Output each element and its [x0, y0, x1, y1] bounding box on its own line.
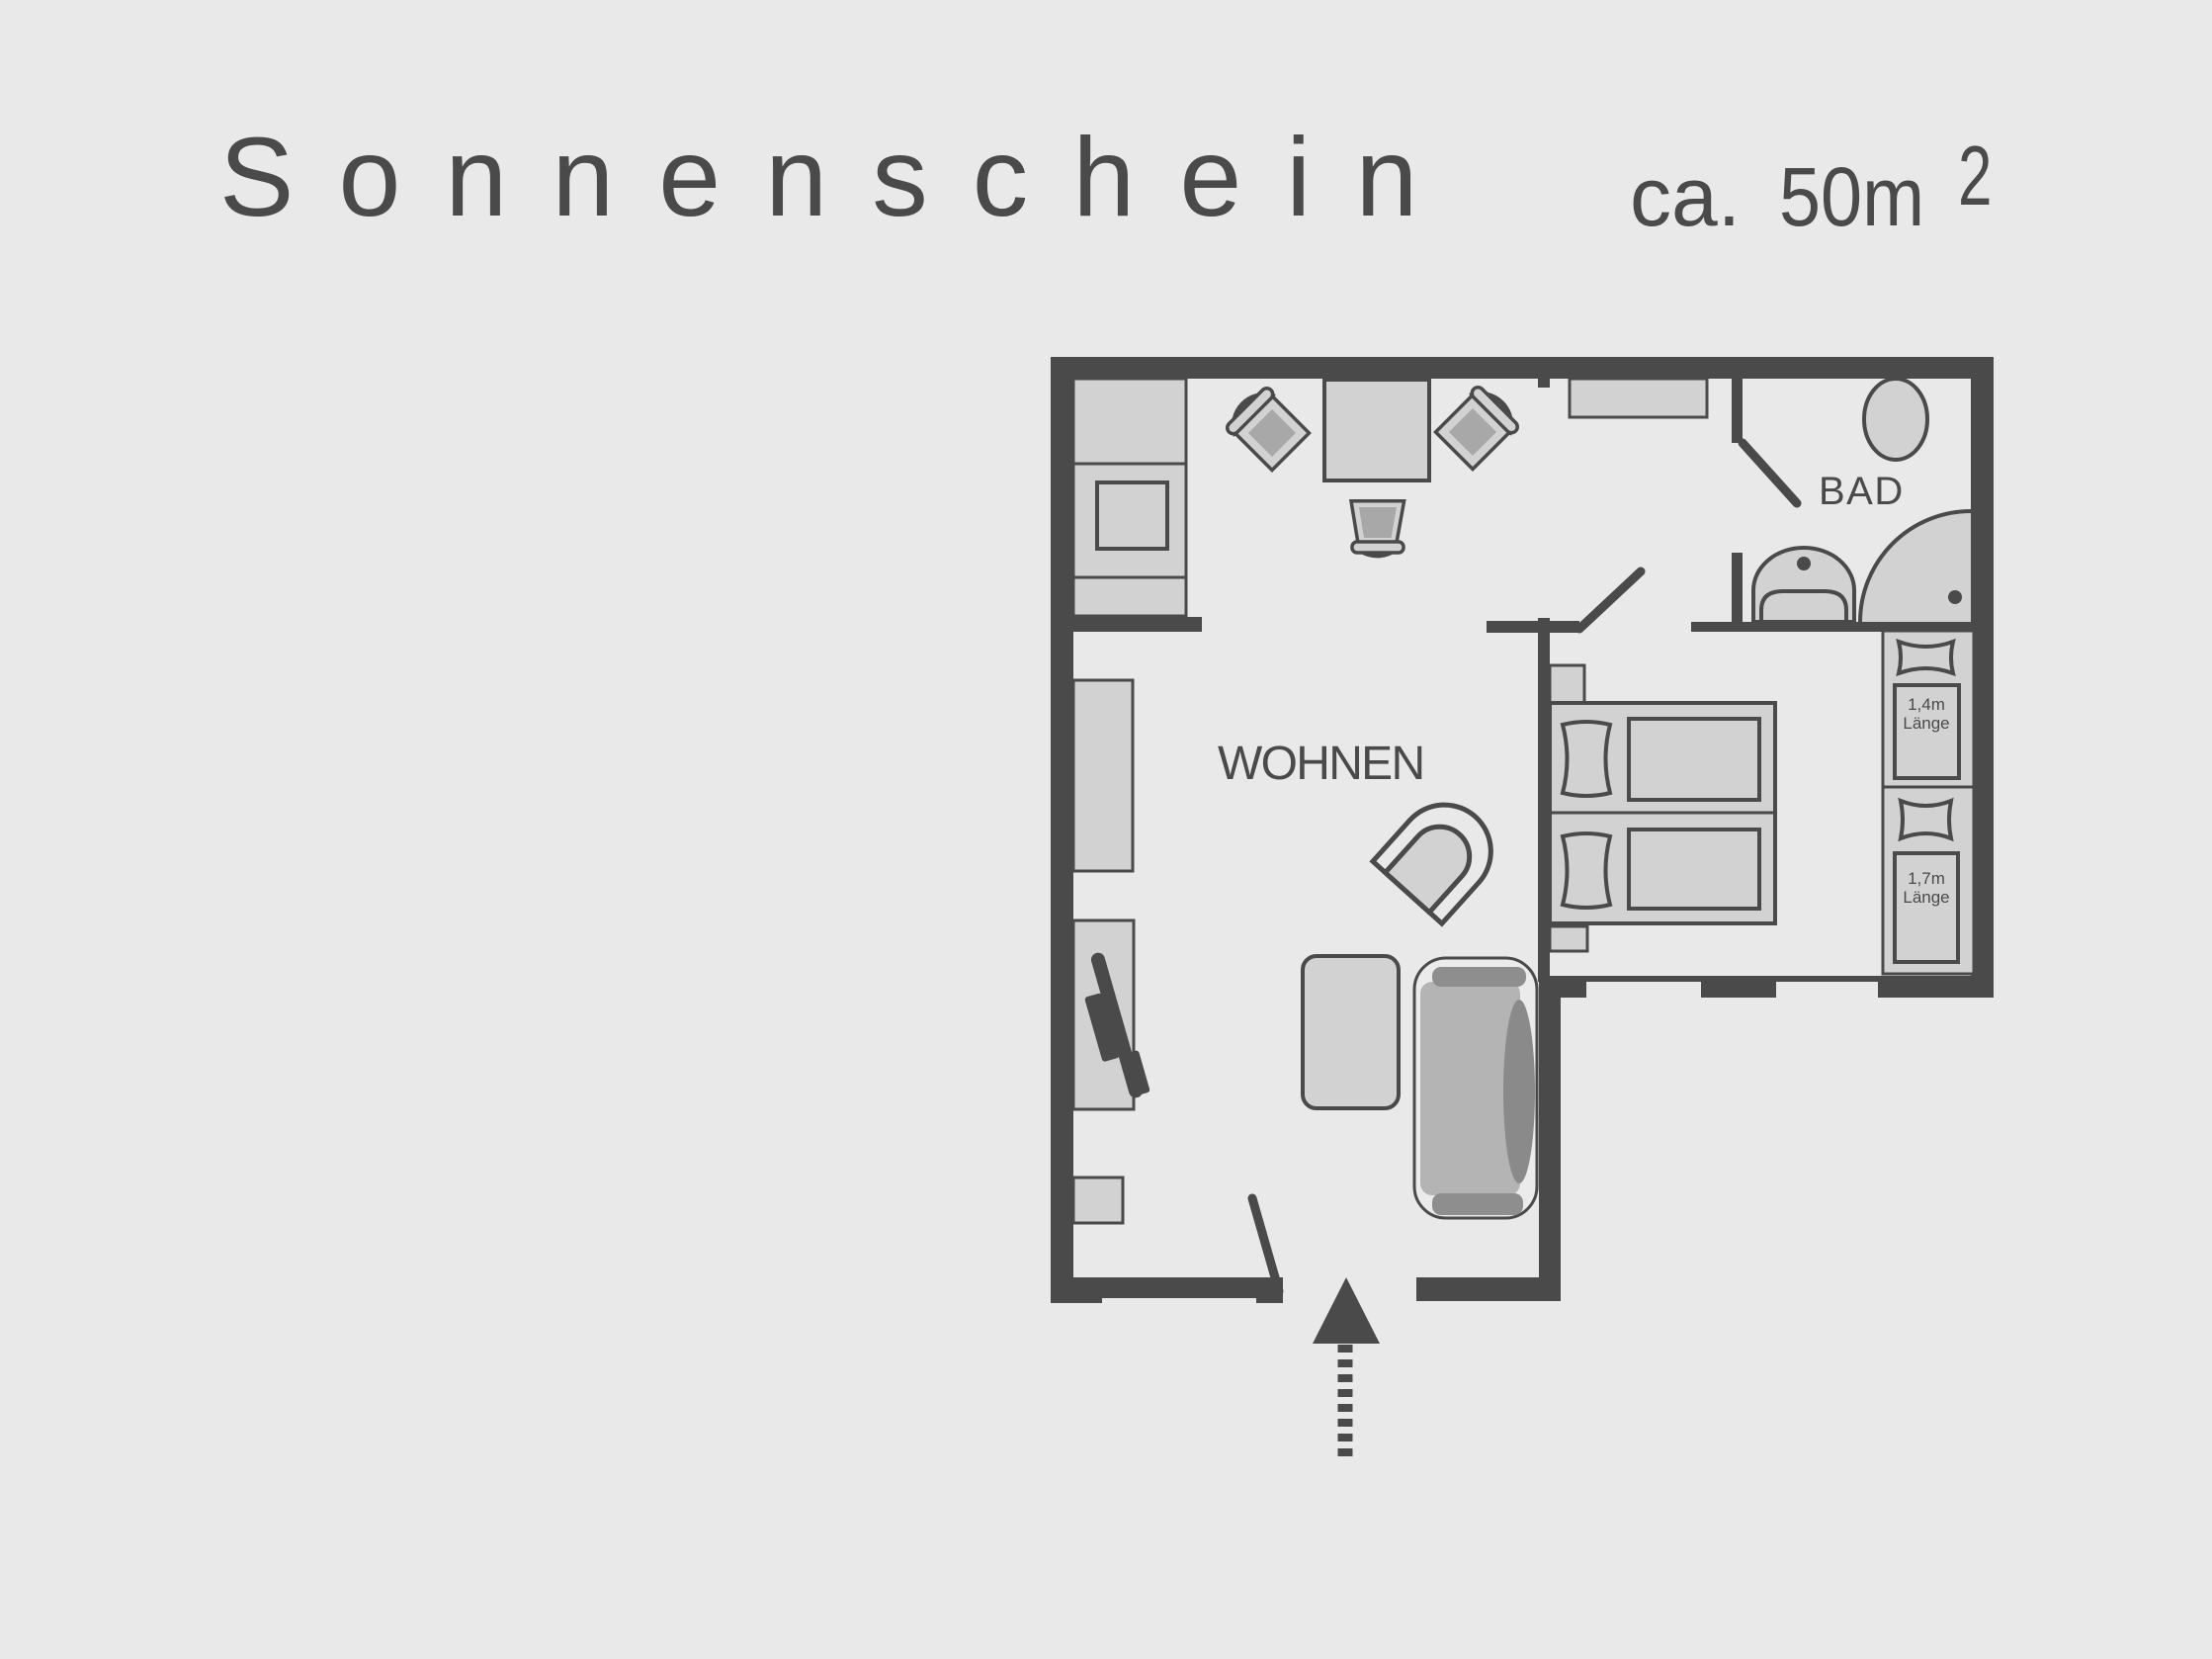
svg-text:1,4m: 1,4m	[1908, 695, 1945, 714]
svg-text:1,7m: 1,7m	[1908, 869, 1945, 888]
svg-text:BAD: BAD	[1819, 470, 1905, 513]
svg-text:2: 2	[1958, 128, 1992, 222]
svg-text:WOHNEN: WOHNEN	[1218, 738, 1423, 790]
svg-text:50m: 50m	[1779, 150, 1924, 243]
svg-text:ca.: ca.	[1630, 150, 1741, 243]
svg-text:Länge: Länge	[1903, 888, 1949, 907]
svg-text:Sonnenschein: Sonnenschein	[219, 115, 1462, 239]
svg-text:Länge: Länge	[1903, 714, 1949, 733]
